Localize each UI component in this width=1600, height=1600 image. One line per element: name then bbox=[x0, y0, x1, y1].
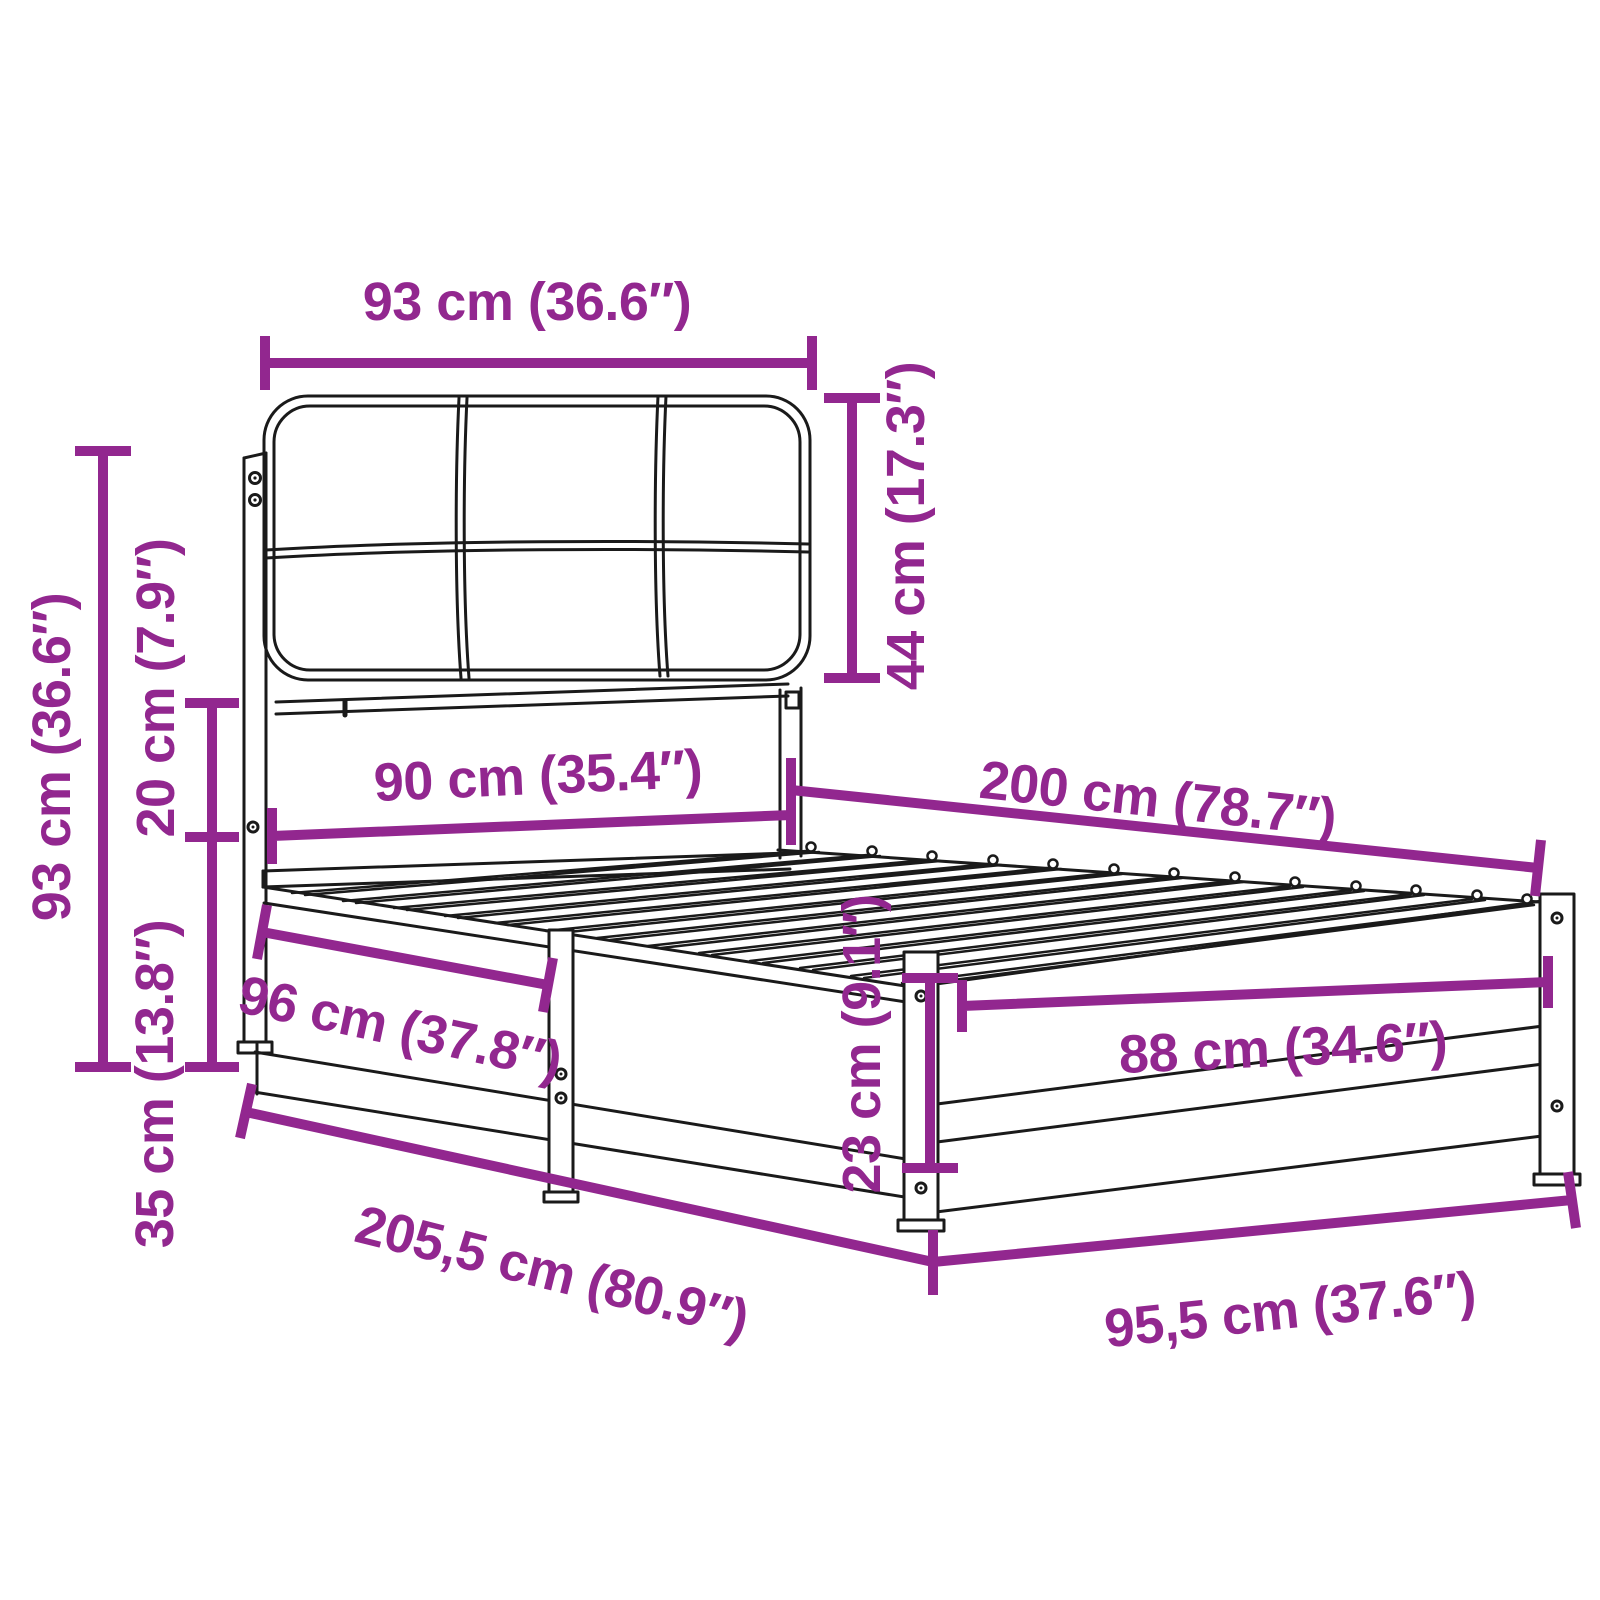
bed-line-drawing bbox=[0, 0, 1600, 1600]
dim-line-total-width bbox=[933, 1172, 1576, 1295]
dim-line-headboard-total-height bbox=[75, 451, 131, 1067]
headboard-cross-rail bbox=[276, 684, 788, 715]
front-corner-post bbox=[898, 952, 944, 1231]
headboard-cushion bbox=[264, 396, 810, 680]
dim-label-headboard-width: 93 cm (36.6″) bbox=[363, 271, 692, 333]
dim-line-total-length bbox=[240, 1084, 933, 1262]
side-rail-face bbox=[254, 1044, 924, 1200]
dim-label-headboard-total-height: 93 cm (36.6″) bbox=[21, 593, 83, 922]
foot-right-post bbox=[1534, 894, 1580, 1185]
dim-label-side-rail-height: 35 cm (13.8″) bbox=[124, 920, 186, 1249]
dim-label-foot-board-height: 23 cm (9.1″) bbox=[831, 894, 893, 1193]
diagram-canvas: 93 cm (36.6″) 44 cm (17.3″) 93 cm (36.6″… bbox=[0, 0, 1600, 1600]
dim-line-gap-and-rail-height bbox=[185, 703, 239, 1067]
dim-label-headboard-cushion-height: 44 cm (17.3″) bbox=[875, 362, 937, 691]
headboard-left-post bbox=[238, 453, 272, 1053]
dim-line-headboard-cushion-height bbox=[824, 398, 880, 678]
dim-label-cushion-to-rail-gap: 20 cm (7.9″) bbox=[125, 538, 187, 837]
dim-line-headboard-width bbox=[265, 336, 812, 390]
